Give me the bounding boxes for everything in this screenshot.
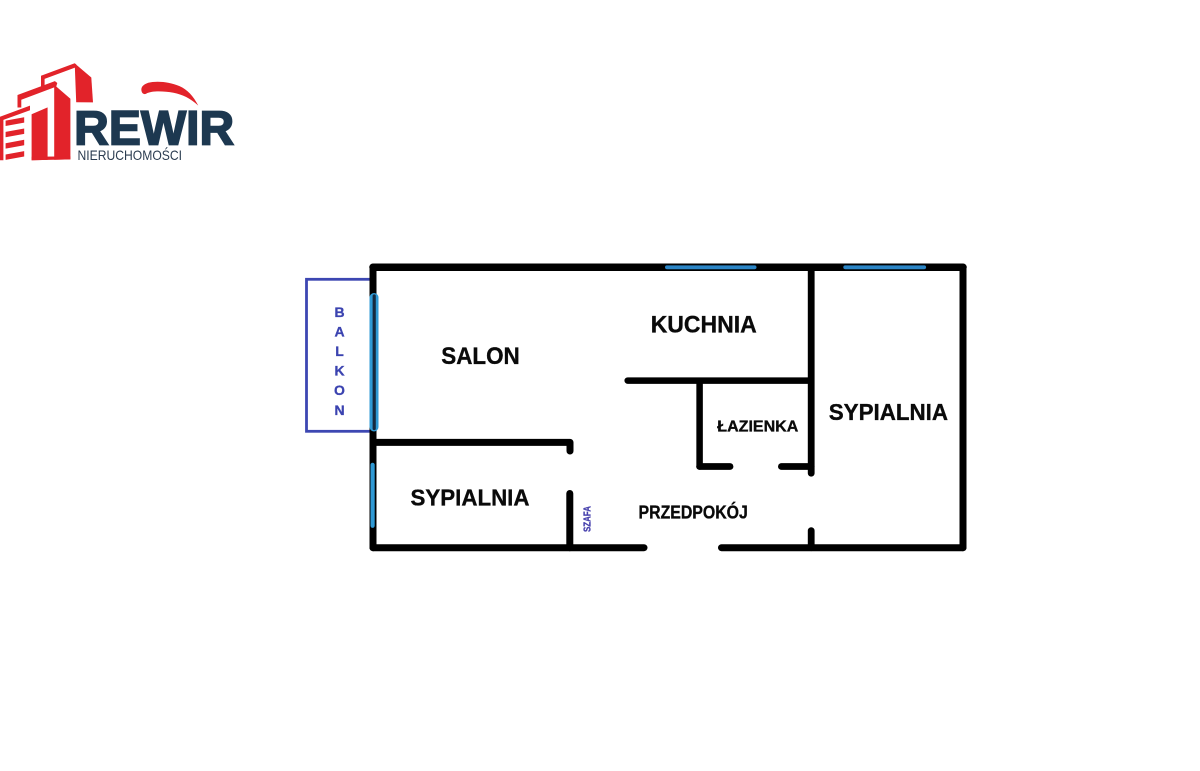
svg-text:PRZEDPOKÓJ: PRZEDPOKÓJ — [639, 502, 748, 523]
svg-text:SALON: SALON — [441, 343, 520, 370]
svg-text:ŁAZIENKA: ŁAZIENKA — [717, 419, 798, 436]
svg-text:SYPIALNIA: SYPIALNIA — [411, 484, 530, 510]
svg-text:KUCHNIA: KUCHNIA — [651, 312, 757, 339]
svg-text:SZAFA: SZAFA — [582, 506, 594, 532]
svg-text:SYPIALNIA: SYPIALNIA — [829, 399, 949, 425]
svg-text:NIERUCHOMOŚCI: NIERUCHOMOŚCI — [78, 146, 183, 163]
